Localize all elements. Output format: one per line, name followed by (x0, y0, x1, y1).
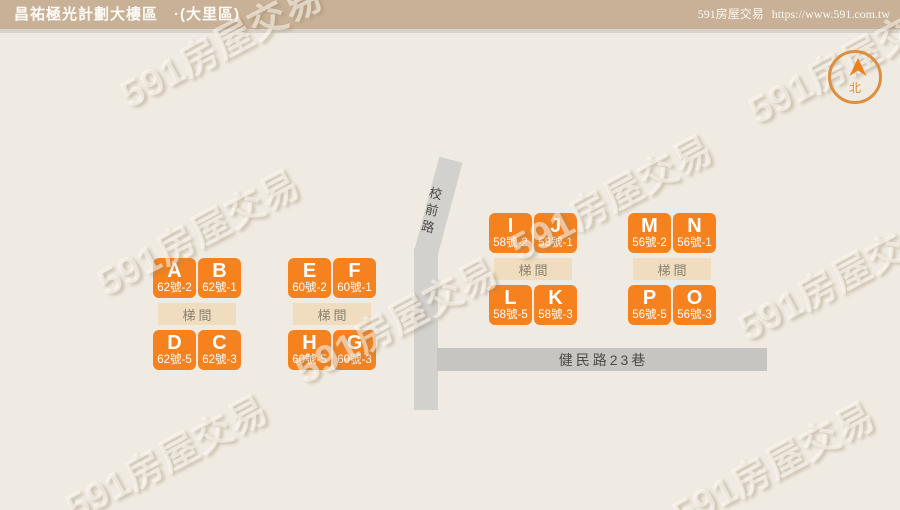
block-letter: N (673, 216, 716, 236)
building-block-l[interactable]: L 58號-5 (489, 285, 532, 325)
road-label-jianmin: 健民路23巷 (556, 350, 649, 370)
block-letter: E (288, 261, 331, 281)
watermark: 591房屋交易 (727, 199, 900, 352)
header: 昌祐極光計劃大樓區 ·(大里區) 591房屋交易 https://www.591… (0, 0, 900, 29)
building-block-h[interactable]: H 60號-5 (288, 330, 331, 370)
block-letter: I (489, 216, 532, 236)
building-block-a[interactable]: A 62號-2 (153, 258, 196, 298)
stairwell-label: 梯間 (494, 258, 572, 280)
building-block-i[interactable]: I 58號-2 (489, 213, 532, 253)
community-map-page: 昌祐極光計劃大樓區 ·(大里區) 591房屋交易 https://www.591… (0, 0, 900, 510)
header-divider (0, 29, 900, 33)
watermark: 591房屋交易 (661, 386, 883, 510)
block-letter: B (198, 261, 241, 281)
block-letter: M (628, 216, 671, 236)
block-letter: G (333, 333, 376, 353)
block-letter: P (628, 288, 671, 308)
block-letter: C (198, 333, 241, 353)
compass-label: 北 (831, 79, 879, 96)
stairwell-label: 梯間 (293, 303, 371, 325)
block-unit: 58號-5 (489, 308, 532, 322)
header-brand: 591房屋交易 https://www.591.com.tw (693, 0, 890, 29)
building-block-e[interactable]: E 60號-2 (288, 258, 331, 298)
block-letter: L (489, 288, 532, 308)
compass: 北 (828, 50, 882, 104)
road-jianmin: 健民路23巷 (437, 348, 767, 371)
block-unit: 58號-2 (489, 236, 532, 250)
block-unit: 56號-3 (673, 308, 716, 322)
block-unit: 60號-5 (288, 353, 331, 367)
block-unit: 56號-1 (673, 236, 716, 250)
block-letter: J (534, 216, 577, 236)
brand-url: https://www.591.com.tw (772, 7, 890, 21)
block-unit: 62號-1 (198, 281, 241, 295)
building-block-b[interactable]: B 62號-1 (198, 258, 241, 298)
building-group-abdc: A 62號-2 B 62號-1 梯間 D 62號-5 C 62號-3 (153, 258, 241, 370)
building-block-f[interactable]: F 60號-1 (333, 258, 376, 298)
building-block-o[interactable]: O 56號-3 (673, 285, 716, 325)
block-unit: 62號-5 (153, 353, 196, 367)
block-letter: K (534, 288, 577, 308)
block-unit: 62號-3 (198, 353, 241, 367)
block-letter: F (333, 261, 376, 281)
building-block-d[interactable]: D 62號-5 (153, 330, 196, 370)
building-group-ijlk: I 58號-2 J 58號-1 梯間 L 58號-5 K 58號-3 (489, 213, 577, 325)
building-block-n[interactable]: N 56號-1 (673, 213, 716, 253)
building-group-mnpo: M 56號-2 N 56號-1 梯間 P 56號-5 O 56號-3 (628, 213, 716, 325)
brand-name: 591房屋交易 (698, 7, 764, 21)
building-group-efhg: E 60號-2 F 60號-1 梯間 H 60號-5 G 60號-3 (288, 258, 376, 370)
building-block-m[interactable]: M 56號-2 (628, 213, 671, 253)
block-letter: H (288, 333, 331, 353)
page-title: 昌祐極光計劃大樓區 ·(大里區) (14, 0, 240, 29)
block-unit: 60號-3 (333, 353, 376, 367)
block-unit: 56號-5 (628, 308, 671, 322)
stairwell-label: 梯間 (633, 258, 711, 280)
building-block-j[interactable]: J 58號-1 (534, 213, 577, 253)
block-unit: 60號-2 (288, 281, 331, 295)
stairwell-label: 梯間 (158, 303, 236, 325)
block-letter: A (153, 261, 196, 281)
road-xiaoqian-vertical (414, 248, 438, 410)
block-unit: 60號-1 (333, 281, 376, 295)
block-unit: 58號-1 (534, 236, 577, 250)
block-unit: 62號-2 (153, 281, 196, 295)
block-letter: O (673, 288, 716, 308)
building-block-g[interactable]: G 60號-3 (333, 330, 376, 370)
watermark: 591房屋交易 (54, 379, 276, 510)
block-unit: 58號-3 (534, 308, 577, 322)
building-block-c[interactable]: C 62號-3 (198, 330, 241, 370)
block-unit: 56號-2 (628, 236, 671, 250)
building-block-p[interactable]: P 56號-5 (628, 285, 671, 325)
block-letter: D (153, 333, 196, 353)
building-block-k[interactable]: K 58號-3 (534, 285, 577, 325)
